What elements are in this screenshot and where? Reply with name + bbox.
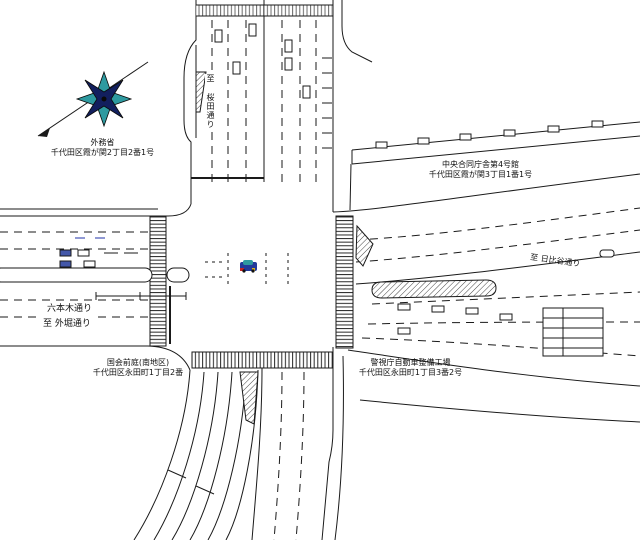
building-address: 千代田区霞が関3丁目1番1号 [408, 170, 553, 180]
structure-block-se [543, 308, 603, 356]
dimension-ticks [322, 58, 332, 148]
building-name: 外務省 [40, 138, 165, 148]
crosswalk-west [150, 216, 166, 346]
parked-vehicles-north [215, 24, 310, 98]
car-icon [240, 260, 257, 273]
direction-label-north: 至 桜田通り [205, 74, 216, 129]
road-label-west: 六本木通り [46, 301, 93, 314]
building-label-sw: 国会前庭(南地区) 千代田区永田町1丁目2番 [78, 358, 198, 378]
median-nose-west [167, 268, 189, 282]
plan-linework [0, 0, 640, 540]
direction-label-west: 至 外堀通り [42, 316, 92, 329]
compass-rose-icon [38, 62, 148, 137]
building-name: 中央合同庁舎第4号館 [408, 160, 553, 170]
intersection-plan-canvas: 外務省 千代田区霞が関2丁目2番1号 中央合同庁舎第4号館 千代田区霞が関3丁目… [0, 0, 640, 540]
crosswalk-east [336, 216, 353, 348]
frontage-line-se [360, 400, 640, 422]
building-address: 千代田区永田町1丁目3番2号 [348, 368, 473, 378]
median-island-east [372, 280, 496, 298]
median-island-west [0, 268, 152, 282]
dimension-line-west [96, 292, 186, 300]
building-name: 警視庁自動車整備工場 [348, 358, 473, 368]
building-name: 国会前庭(南地区) [78, 358, 198, 368]
crosswalk-south [192, 352, 333, 368]
west-road [0, 204, 191, 370]
building-label-nw: 外務省 千代田区霞が関2丁目2番1号 [40, 138, 165, 158]
building-address: 千代田区永田町1丁目2番 [78, 368, 198, 378]
channel-island-east [356, 226, 373, 266]
building-label-ne: 中央合同庁舎第4号館 千代田区霞が関3丁目1番1号 [408, 160, 553, 180]
fan-lanes-southwest [134, 370, 258, 540]
building-address: 千代田区霞が関2丁目2番1号 [40, 148, 165, 158]
building-label-se: 警視庁自動車整備工場 千代田区永田町1丁目3番2号 [348, 358, 473, 378]
parked-vehicles-west [60, 238, 138, 267]
